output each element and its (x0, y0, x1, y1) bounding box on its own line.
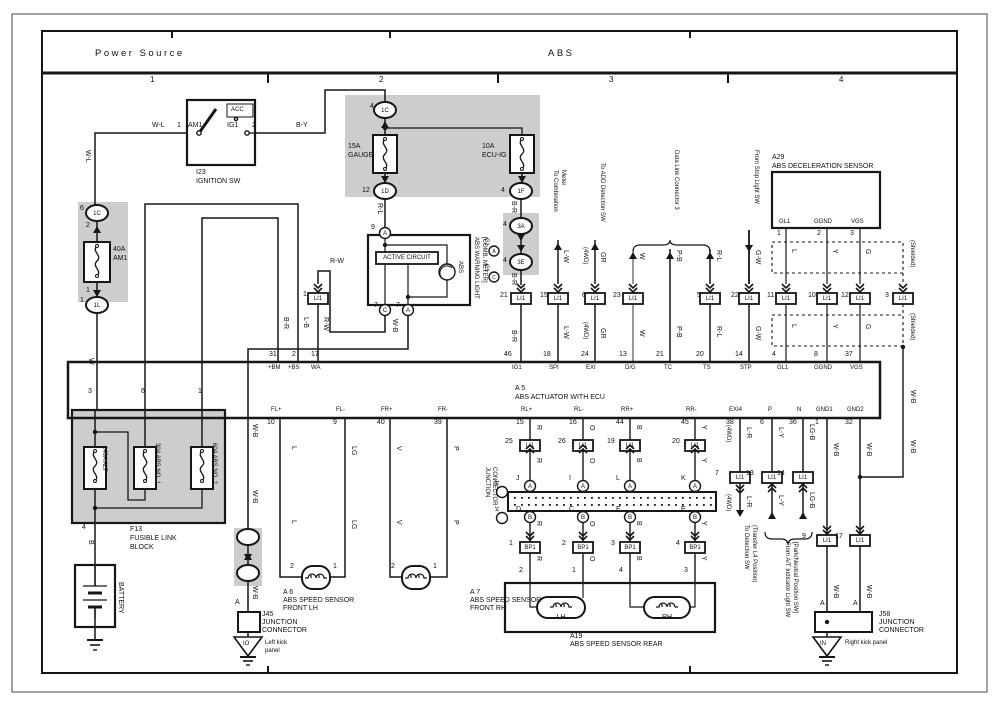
label-term-flm: FL- (336, 406, 345, 414)
label-comp-a19-lh: LH (557, 614, 566, 622)
label-n-6: 6 (141, 388, 145, 396)
label-wire-br: B-R (509, 273, 517, 285)
label-comp-a5-name: ABS ACTUATOR WITH ECU (515, 394, 605, 402)
label-wire-wb: W-B (864, 585, 872, 598)
label-wire-pb: P-B (674, 250, 682, 262)
label-n-7: 7 (396, 302, 400, 310)
label-conn-li1: LI1 (517, 295, 525, 303)
label-conn-li1: LI1 (526, 442, 534, 450)
label-comp-fuse_am1-name: AM1 (113, 255, 127, 263)
label-wire-lg: LG (349, 520, 357, 529)
label-term-rrp: RR+ (621, 406, 633, 414)
label-ref-from_at1: From A/T Indicator Light SW (783, 542, 791, 617)
label-term-frp: FR+ (381, 406, 393, 414)
label-comp-meter-bulb: ABS (456, 261, 464, 273)
label-comp-meter-active: ACTIVE CIRCUIT (383, 254, 431, 262)
label-conn-li1: LI1 (626, 442, 634, 450)
label-lt-i: I (569, 475, 571, 483)
label-n-4: 4 (619, 567, 623, 575)
label-wire-o: O (587, 425, 595, 430)
label-comp-f13-id: F13 (130, 526, 142, 534)
label-lt-a: A (628, 483, 632, 491)
label-lt-c: C (383, 307, 387, 315)
connector-oval-1F (237, 565, 259, 581)
label-wire-r: R (534, 458, 542, 463)
label-conn-li1: LI1 (314, 295, 322, 303)
label-n-1: 1 (433, 563, 437, 571)
label-conn-li1: LI1 (768, 474, 776, 482)
label-comp-j45: J45 (262, 611, 273, 619)
label-n-2: 2 (86, 222, 90, 230)
label-wire-by: B-Y (296, 122, 308, 130)
label-term-frm: FR- (438, 406, 448, 414)
label-n-3: 3 (611, 540, 615, 548)
label-wire-wb: W-B (250, 586, 258, 599)
label-term-tc: TC (664, 364, 672, 372)
label-wire-r: R (534, 425, 542, 430)
label-wire-rl: R-L (375, 203, 383, 214)
label-term-rrm: RR- (686, 406, 697, 414)
label-comp-a6-id: A 6 (283, 589, 293, 597)
label-term-n: N (797, 406, 801, 414)
label-n-6: 6 (760, 419, 764, 427)
label-wire-g: G (863, 324, 871, 329)
label-comp-a6-l2: FRONT LH (283, 605, 318, 613)
label-conn-li1: LI1 (856, 295, 864, 303)
label-wire-bk: B (634, 556, 642, 561)
label-n-39: 39 (434, 419, 442, 427)
label-wire-awd: (4WD) (724, 425, 732, 442)
label-lt-a: A (853, 600, 858, 608)
label-wire-w: W (637, 253, 645, 260)
label-header-c1: 1 (150, 76, 154, 84)
label-wire-ly: L-Y (776, 427, 784, 438)
label-wire-wb: W-B (250, 490, 258, 503)
label-wire-rl: R-L (714, 250, 722, 261)
label-wire-y: Y (830, 324, 838, 329)
label-n-2: 2 (292, 351, 296, 359)
label-n-11: 11 (767, 292, 774, 300)
pin-circle (234, 117, 237, 120)
label-wire-lgb: LG-B (807, 424, 815, 440)
label-n-37: 37 (845, 351, 853, 359)
label-n-4: 4 (370, 103, 374, 111)
label-n-16: 16 (569, 419, 577, 427)
label-comp-ignition-name: IGNITION SW (196, 178, 240, 186)
label-term-rlm: RL- (574, 406, 584, 414)
label-n-5: 5 (697, 292, 701, 300)
pin-circle (245, 131, 249, 135)
label-n-23: 23 (613, 292, 621, 300)
label-comp-a7-l1: ABS SPEED SENSOR (470, 597, 541, 605)
label-lt-a: A (492, 248, 495, 256)
pin-circle (497, 513, 508, 524)
label-wire-wb: W-B (250, 424, 258, 437)
label-n-1: 1 (198, 388, 202, 396)
label-n-12: 12 (362, 187, 370, 195)
label-lt-e: E (681, 506, 686, 514)
label-wire-lb: L-B (301, 317, 309, 328)
label-wire-bk: B (634, 521, 642, 526)
label-wire-bk: B (634, 458, 642, 463)
label-wire-awd: (4WD) (581, 247, 589, 264)
label-lt-k: K (681, 475, 686, 483)
label-n-21: 21 (656, 351, 664, 359)
label-wire-br: B-R (509, 201, 517, 213)
label-comp-a29-name: ABS DECELERATION SENSOR (772, 163, 873, 171)
label-comp-fuse_ecuig-amp: 10A (482, 143, 494, 151)
label-n-2: 2 (519, 567, 523, 575)
label-gnd-left2: panel (265, 647, 280, 655)
label-n-10: 10 (808, 292, 816, 300)
connector-oval-1D (237, 529, 259, 545)
wiring-diagram-page: Power SourceABS1234W-L1AM1IG12B-YACCI23I… (0, 0, 1000, 706)
label-term-am1: AM1 (188, 122, 202, 130)
label-n-6: 6 (582, 292, 586, 300)
label-wire-wl: W-L (83, 150, 91, 163)
label-conn-c3a: 3A (517, 223, 524, 231)
label-comp-junction: JUNCTION (262, 619, 297, 627)
label-wire-y: Y (830, 249, 838, 254)
label-wire-l: L (289, 446, 297, 450)
label-wire-pb: P-B (674, 326, 682, 338)
label-conn-c1l: 1L (94, 302, 101, 310)
label-comp-fuse_am1-amp: 40A (113, 246, 125, 254)
label-comp-a6-l1: ABS SPEED SENSOR (283, 597, 354, 605)
label-n-4: 4 (503, 257, 507, 265)
shielded-cable-box (772, 315, 903, 346)
label-wire-y: Y (699, 458, 707, 463)
label-wire-o: O (587, 556, 595, 561)
label-n-19: 19 (607, 438, 615, 446)
label-n-1: 1 (815, 419, 819, 427)
label-comp-a7-id: A 7 (470, 589, 480, 597)
label-n-25: 25 (505, 438, 513, 446)
label-n-3: 3 (850, 230, 854, 238)
label-n-1: 1 (303, 291, 307, 299)
label-term-gl1: GL1 (779, 218, 790, 226)
label-comp-a19-name: ABS SPEED SENSOR REAR (570, 641, 663, 649)
label-wire-wb: W-B (908, 390, 916, 403)
label-conn-bp1: BP1 (524, 544, 535, 552)
label-n-13: 13 (746, 470, 754, 478)
label-conn-c1c: 1C (93, 210, 101, 218)
label-wire-g: G (863, 249, 871, 254)
label-n-9: 9 (802, 533, 806, 541)
label-wire-br: B-R (509, 330, 517, 342)
shielded-cable-box (772, 242, 903, 273)
label-comp-a19-id: A19 (570, 633, 582, 641)
label-term-bm: +BM (268, 364, 281, 372)
label-comp-battery: BATTERY (116, 582, 124, 614)
label-term-spi: SPI (549, 364, 559, 372)
label-wire-ly: L-Y (776, 495, 784, 506)
label-wire-wl: W-L (152, 122, 165, 130)
label-ref-dlc3: Data Link Connector 3 (672, 150, 680, 210)
label-n-31: 31 (269, 351, 277, 359)
label-lt-a: A (406, 307, 410, 315)
label-conn-li1: LI1 (823, 537, 831, 545)
label-wire-y: Y (699, 425, 707, 430)
label-n-36: 36 (789, 419, 797, 427)
label-n-4: 4 (501, 187, 505, 195)
label-conn-c1d: 1D (381, 188, 389, 196)
label-wire-bk: B (634, 425, 642, 430)
label-conn-bp1: BP1 (624, 544, 635, 552)
label-lt-b: B (693, 514, 697, 522)
label-lt-d: D (516, 506, 521, 514)
label-wire-gr: GR (598, 328, 606, 339)
label-conn-li1: LI1 (579, 442, 587, 450)
label-conn-li1: LI1 (899, 295, 907, 303)
label-comp-f13-f2: 30A ABS NO. 1 (153, 443, 161, 484)
label-n-15: 15 (540, 292, 548, 300)
label-comp-connector: CONNECTOR (262, 627, 307, 635)
j45-junction-connector-box (238, 612, 260, 632)
label-n-17: 17 (311, 351, 319, 359)
ground-symbol (813, 637, 841, 656)
label-header-c3: 3 (609, 76, 613, 84)
label-n-8: 8 (814, 351, 818, 359)
label-lt-a: A (820, 600, 825, 608)
label-comp-junction: JUNCTION (879, 619, 914, 627)
label-n-6: 6 (80, 205, 84, 213)
label-wire-lg: LG (349, 446, 357, 455)
label-n-20: 20 (696, 351, 704, 359)
label-n-15: 15 (516, 419, 524, 427)
label-header-left: Power Source (95, 50, 185, 58)
j58-junction-connector-box (815, 612, 872, 632)
label-conn-li1: LI1 (745, 295, 753, 303)
label-comp-a19-rh: RH (662, 614, 672, 622)
label-comp-a5-id: A 5 (515, 385, 525, 393)
label-wire-r: R (534, 556, 542, 561)
label-n-14: 14 (735, 351, 743, 359)
label-comp-ignition-id: I23 (196, 169, 206, 177)
label-wire-gw: G-W (753, 250, 761, 264)
label-conn-li1: LI1 (736, 474, 744, 482)
label-n-18: 18 (543, 351, 551, 359)
label-n-1: 1 (777, 230, 781, 238)
label-wire-o: O (587, 458, 595, 463)
label-wire-rw: R-W (321, 317, 329, 331)
label-ref-to_comb1: To Combination (551, 170, 559, 212)
label-n-2: 2 (252, 122, 256, 130)
label-wire-lw: L-W (561, 326, 569, 339)
label-term-bs: +BS (288, 364, 300, 372)
label-ref-from_at2: [Park/Neutral Position SW] (791, 542, 799, 613)
label-conn-c1f: 1F (517, 188, 524, 196)
label-term-ig1: IG1 (227, 122, 238, 130)
label-wire-awd: (4WD) (724, 494, 732, 511)
label-n-3: 3 (885, 292, 889, 300)
label-conn-c1c: 1C (381, 107, 389, 115)
label-comp-fuse_gauge-amp: 15A (348, 143, 360, 151)
label-wire-br: B-R (281, 317, 289, 329)
label-conn-li1: LI1 (591, 295, 599, 303)
label-wire-v: V (394, 446, 402, 451)
label-n-7: 7 (374, 302, 378, 310)
label-term-dg: D/G (625, 364, 636, 372)
label-term-ts: TS (703, 364, 711, 372)
label-term-gl1: GL1 (777, 364, 788, 372)
label-n-1: 1 (509, 540, 513, 548)
label-wire-gw: G-W (753, 326, 761, 340)
pin-circle (497, 487, 508, 498)
label-comp-f13-f1: 140A ALT (100, 446, 108, 472)
label-n-32: 32 (845, 419, 853, 427)
label-lt-j: J (516, 475, 520, 483)
label-n-9: 9 (371, 224, 375, 232)
label-comp-meter-l1: ABS WARNING LIGHT (472, 237, 480, 299)
label-wire-lr: L-R (744, 496, 752, 507)
label-wire-r: R (534, 521, 542, 526)
pin-circle (197, 131, 201, 135)
label-term-flp: FL+ (271, 406, 282, 414)
label-n-21: 21 (500, 292, 508, 300)
label-comp-f13-l1: FUSIBLE LINK (130, 535, 177, 543)
label-term-exi: EXI (586, 364, 596, 372)
label-conn-bp1: BP1 (577, 544, 588, 552)
label-comp-j58: J58 (879, 611, 890, 619)
label-conn-j4: J4 (492, 480, 500, 485)
label-wire-rw: R-W (330, 258, 344, 266)
label-header-c2: 2 (379, 76, 383, 84)
label-wire-p: P (451, 446, 459, 451)
label-term-gnd1: GND1 (816, 406, 833, 414)
label-wire-v: V (394, 520, 402, 525)
label-n-4: 4 (82, 524, 86, 532)
label-gnd-left_code: IO (243, 640, 249, 648)
label-n-9: 9 (333, 419, 337, 427)
label-wire-l: L (789, 324, 797, 328)
label-term-ggnd: GGND (814, 364, 832, 372)
label-lt-c: C (569, 506, 574, 514)
label-wire-wb: W-B (831, 585, 839, 598)
label-wire-wb: W-B (908, 440, 916, 453)
label-n-1: 1 (80, 297, 84, 305)
label-comp-a29-id: A29 (772, 154, 784, 162)
label-n-46: 46 (504, 351, 512, 359)
label-comp-fuse_ecuig-name: ECU-IG (482, 152, 507, 160)
label-n-4: 4 (503, 221, 507, 229)
label-term-rlp: RL+ (521, 406, 532, 414)
label-header-c4: 4 (839, 76, 843, 84)
label-n-1: 1 (177, 122, 181, 130)
label-n-1: 1 (572, 567, 576, 575)
label-n-20: 20 (672, 438, 680, 446)
label-conn-li1: LI1 (691, 442, 699, 450)
label-lt-a: A (581, 483, 585, 491)
label-wire-shielded: (Shielded) (908, 240, 916, 267)
label-ref-from_stop: From Stop Light SW (752, 150, 760, 204)
label-conn-li1: LI1 (554, 295, 562, 303)
label-n-22: 22 (731, 292, 739, 300)
label-lt-f: F (616, 506, 620, 514)
label-term-vgs: VGS (851, 218, 864, 226)
label-lt-a: A (528, 483, 532, 491)
label-term-vgs: VGS (850, 364, 863, 372)
label-wire-y: Y (699, 521, 707, 526)
label-lt-b: B (528, 514, 532, 522)
label-n-2: 2 (562, 540, 566, 548)
label-term-acc: ACC (231, 106, 244, 114)
label-ref-to_add: To ADD Detection SW (598, 163, 606, 222)
label-wire-lw: L-W (561, 250, 569, 263)
label-comp-meter-l2: [COMB. METER] (480, 237, 488, 283)
label-wire-awd: (4WD) (581, 322, 589, 339)
label-conn-li1: LI1 (706, 295, 714, 303)
label-n-10: 10 (267, 419, 275, 427)
label-lt-b: B (628, 514, 632, 522)
label-n-44: 44 (616, 419, 624, 427)
label-n-7: 7 (715, 470, 719, 478)
label-lt-a: A (383, 230, 387, 238)
label-n-4: 4 (676, 540, 680, 548)
label-header-abs: ABS (548, 50, 575, 58)
label-n-45: 45 (681, 419, 689, 427)
label-lt-a: A (693, 483, 697, 491)
label-conn-li1: LI1 (782, 295, 790, 303)
label-lt-a: A (235, 599, 240, 607)
label-comp-connector: CONNECTOR (490, 467, 498, 506)
label-wire-l: L (289, 520, 297, 524)
label-n-2: 2 (391, 563, 395, 571)
label-wire-p: P (451, 520, 459, 525)
label-n-40: 40 (377, 419, 385, 427)
label-lt-l: L (616, 475, 620, 483)
label-comp-f13-l2: BLOCK (130, 544, 154, 552)
label-n-2: 2 (290, 563, 294, 571)
label-comp-fuse_gauge-name: GAUGE (348, 152, 373, 160)
label-n-14: 14 (777, 470, 785, 478)
label-n-26: 26 (558, 438, 566, 446)
label-wire-shielded: (Shielded) (908, 313, 916, 340)
label-wire-y: Y (699, 556, 707, 561)
label-wire-lgb: LG-B (807, 492, 815, 508)
label-lt-c: C (492, 274, 496, 282)
label-conn-c3e: 3E (517, 259, 524, 267)
label-wire-wb: W-B (390, 319, 398, 332)
label-n-3: 3 (88, 388, 92, 396)
label-n-1: 1 (86, 287, 90, 295)
label-lt-b: B (581, 514, 585, 522)
label-term-stp: STP (740, 364, 752, 372)
label-wire-rl: R-L (714, 326, 722, 337)
label-term-gnd2: GND2 (847, 406, 864, 414)
label-wire-w: W (637, 330, 645, 337)
label-n-3: 3 (684, 567, 688, 575)
label-comp-f13-f3: 60A ABS NO. 2 (210, 443, 218, 484)
label-wire-lr: L-R (744, 427, 752, 438)
label-term-ig1: IG1 (512, 364, 522, 372)
label-wire-wb: W-B (831, 443, 839, 456)
label-gnd-right: Right kick panel (845, 639, 887, 647)
label-ref-to_comb2: Meter (559, 170, 567, 185)
label-n-4: 4 (772, 351, 776, 359)
label-wire-wb: W-B (864, 443, 872, 456)
label-conn-li1: LI1 (799, 474, 807, 482)
label-ref-to_det1: To Detection SW (742, 525, 750, 570)
label-n-24: 24 (581, 351, 589, 359)
label-comp-a7-l2: FRONT RH (470, 605, 506, 613)
label-conn-bp1: BP1 (689, 544, 700, 552)
label-n-2: 2 (817, 230, 821, 238)
label-n-1: 1 (333, 563, 337, 571)
label-wire-gr: GR (598, 252, 606, 263)
label-conn-li1: LI1 (823, 295, 831, 303)
label-wire-o: O (587, 521, 595, 526)
